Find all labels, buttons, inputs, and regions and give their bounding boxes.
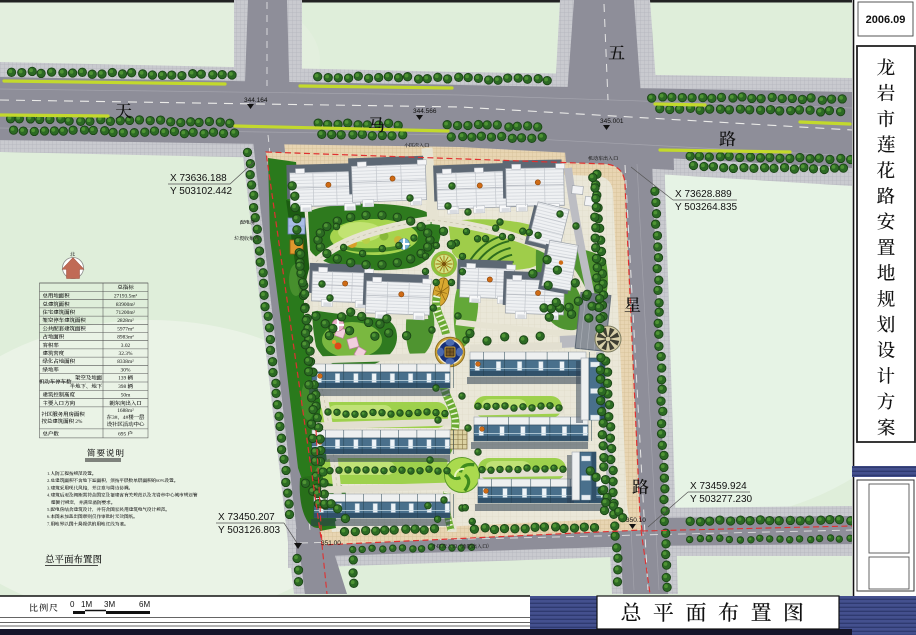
svg-text:置: 置: [877, 234, 896, 260]
svg-text:岩: 岩: [877, 80, 896, 106]
svg-text:设: 设: [877, 337, 896, 363]
svg-text:3M: 3M: [104, 600, 115, 609]
svg-text:398 辆: 398 辆: [118, 382, 133, 390]
svg-text:350.10: 350.10: [626, 517, 646, 524]
svg-text:垃圾收集点: 垃圾收集点: [234, 235, 259, 242]
svg-text:1.人防工程按规范设置。: 1.人防工程按规范设置。: [47, 470, 96, 477]
svg-text:X 73459.924: X 73459.924: [690, 481, 747, 492]
svg-text:695 户: 695 户: [118, 429, 133, 437]
svg-text:71200m²: 71200m²: [116, 308, 136, 316]
svg-text:比例尺: 比例尺: [29, 601, 59, 614]
svg-text:机动车停车数: 机动车停车数: [39, 378, 72, 386]
svg-text:计: 计: [877, 362, 896, 388]
svg-text:X 73636.188: X 73636.188: [170, 173, 227, 184]
svg-text:30%: 30%: [121, 365, 131, 373]
svg-text:X 73450.207: X 73450.207: [218, 512, 275, 523]
svg-text:3.02: 3.02: [121, 341, 131, 349]
svg-text:总指标: 总指标: [117, 283, 134, 291]
svg-text:小区次入口: 小区次入口: [404, 142, 430, 149]
svg-text:Y 503102.442: Y 503102.442: [170, 186, 233, 197]
svg-text:安: 安: [877, 208, 896, 234]
svg-text:X 73628.889: X 73628.889: [675, 189, 732, 200]
svg-text:345.001: 345.001: [600, 118, 624, 125]
svg-text:天: 天: [115, 97, 132, 122]
svg-text:路: 路: [877, 183, 896, 209]
svg-text:建筑控制高度: 建筑控制高度: [43, 391, 76, 399]
svg-text:50m: 50m: [121, 391, 131, 399]
svg-text:27193.5m²: 27193.5m²: [114, 292, 138, 300]
svg-text:简要说明: 简要说明: [87, 447, 125, 459]
svg-text:小区次入口（消防出入口）: 小区次入口（消防出入口）: [432, 543, 492, 550]
svg-text:机动车出入口: 机动车出入口: [588, 155, 619, 162]
svg-text:划: 划: [877, 311, 896, 337]
svg-text:方: 方: [877, 388, 896, 414]
svg-text:设社区活动中心: 设社区活动中心: [107, 420, 145, 428]
svg-text:2828m²: 2828m²: [117, 316, 134, 324]
svg-text:规: 规: [877, 285, 896, 311]
svg-text:架空停车建筑面积: 架空停车建筑面积: [43, 316, 87, 324]
svg-text:6M: 6M: [139, 600, 150, 609]
svg-text:32.3%: 32.3%: [119, 349, 133, 357]
svg-text:344.164: 344.164: [244, 97, 268, 104]
svg-text:占地面积: 占地面积: [43, 333, 65, 341]
svg-text:总建筑面积: 总建筑面积: [43, 300, 71, 308]
svg-text:龙: 龙: [877, 54, 896, 80]
svg-text:总户数: 总户数: [43, 429, 60, 437]
svg-text:马: 马: [368, 111, 385, 136]
svg-text:路: 路: [632, 473, 650, 498]
svg-text:案: 案: [877, 414, 896, 440]
svg-text:6.本图未加盖出图章则仅作审批时无效图纸。: 6.本图未加盖出图章则仅作审批时无效图纸。: [47, 513, 138, 520]
svg-text:容积率: 容积率: [43, 341, 60, 349]
svg-text:3.建筑采用现代风格，并注意与周边协调。: 3.建筑采用现代风格，并注意与周边协调。: [47, 484, 133, 491]
svg-text:5977m²: 5977m²: [117, 324, 134, 332]
svg-text:花: 花: [877, 157, 896, 183]
svg-text:2006.09: 2006.09: [866, 14, 906, 26]
svg-text:8983m²: 8983m²: [117, 333, 134, 341]
svg-text:五: 五: [608, 39, 625, 64]
svg-text:主要入口方向: 主要入口方向: [43, 399, 76, 407]
svg-text:半地下、地下: 半地下、地下: [70, 382, 103, 390]
svg-text:Y 503264.835: Y 503264.835: [675, 202, 738, 213]
svg-text:83900m²: 83900m²: [116, 300, 136, 308]
svg-text:绿化占地面积: 绿化占地面积: [43, 357, 76, 365]
svg-text:344.566: 344.566: [413, 108, 437, 115]
svg-text:351.00: 351.00: [321, 540, 341, 547]
svg-text:莲: 莲: [877, 131, 896, 157]
svg-text:按总建筑面积 2%: 按总建筑面积 2%: [42, 417, 83, 425]
svg-text:理暂行规定，并满足消防要求。: 理暂行规定，并满足消防要求。: [50, 499, 115, 506]
svg-text:市: 市: [877, 105, 896, 131]
svg-text:架空及地面: 架空及地面: [75, 374, 103, 382]
svg-text:住宅建筑面积: 住宅建筑面积: [43, 308, 76, 316]
svg-text:地: 地: [877, 260, 896, 286]
svg-text:公共配套建筑面积: 公共配套建筑面积: [43, 324, 87, 332]
svg-text:4.建筑后退及间距需符合国家及福建省有关规范以及龙岩市中心城: 4.建筑后退及间距需符合国家及福建省有关规范以及龙岩市中心城市规划管: [47, 492, 198, 499]
svg-text:0: 0: [70, 600, 75, 609]
svg-text:星: 星: [624, 291, 641, 316]
svg-text:北: 北: [69, 251, 75, 258]
svg-text:配电房: 配电房: [240, 219, 255, 226]
svg-text:5.配电房结合建筑设计，并符合国家民用建筑电气设计规范。: 5.配电房结合建筑设计，并符合国家民用建筑电气设计规范。: [47, 506, 170, 513]
svg-text:8338m²: 8338m²: [117, 357, 134, 365]
svg-text:绿地率: 绿地率: [43, 365, 60, 373]
svg-text:总用地面积: 总用地面积: [43, 292, 71, 300]
svg-text:Y 503277.230: Y 503277.230: [690, 494, 753, 505]
svg-text:2.总建筑面积不含地下室面积，须按平层数单层面积的60%设置: 2.总建筑面积不含地下室面积，须按平层数单层面积的60%设置。: [47, 477, 178, 484]
svg-text:路: 路: [719, 125, 737, 150]
svg-text:建筑密度: 建筑密度: [43, 349, 65, 357]
svg-text:总平面布置图: 总平面布置图: [621, 597, 816, 627]
svg-text:1M: 1M: [81, 600, 92, 609]
svg-text:总平面布置图: 总平面布置图: [45, 552, 102, 566]
svg-text:7.用地界以国土局提供的用地红线为准。: 7.用地界以国土局提供的用地红线为准。: [47, 520, 129, 527]
svg-text:139 辆: 139 辆: [118, 374, 133, 382]
svg-text:Y 503126.803: Y 503126.803: [218, 525, 281, 536]
